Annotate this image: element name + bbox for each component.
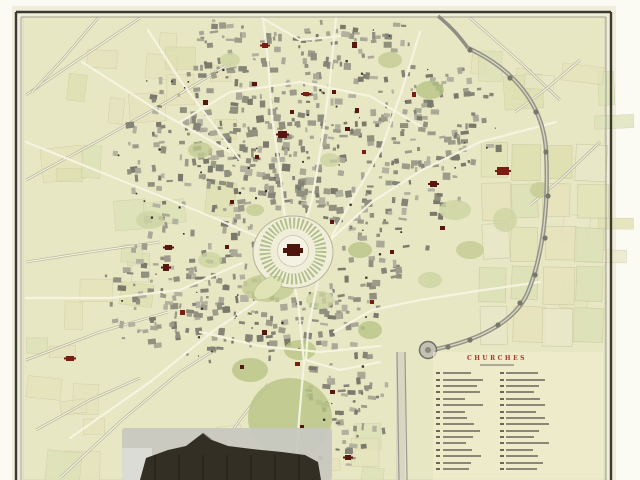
legend-row-name [506,462,543,464]
legend-row-number [436,372,440,374]
legend-columns [436,370,558,480]
church-marker [180,310,185,315]
legend-row-number [500,449,504,451]
legend-row-name [506,468,537,470]
legend-row-number [436,462,440,464]
church-marker [412,92,416,97]
legend-row-number [500,430,504,432]
vignette-engraving [122,428,332,480]
legend-row-number [436,468,440,470]
legend-row-name [506,417,545,419]
legend-row-number [436,430,440,432]
legend-title: CHURCHES [436,355,558,362]
church-marker [262,330,267,335]
legend-row-name [443,404,483,406]
legend-row [436,466,495,472]
legend-row-number [436,379,440,381]
scanned-antique-map-thumbnail: CHURCHES [0,0,640,480]
legend-row-number [500,385,504,387]
church-marker [203,100,208,105]
legend-row-number [436,455,440,457]
church-marker [440,226,445,230]
legend-row-name [506,436,534,438]
church-marker [355,108,359,113]
legend-row-number [500,404,504,406]
legend-row-name [506,385,539,387]
legend-row-number [436,391,440,393]
legend-row-name [506,455,538,457]
legend-row-number [436,404,440,406]
legend-row-number [500,423,504,425]
legend-subtitle-rule [480,364,514,366]
church-marker [230,200,234,204]
legend-row-name [506,398,540,400]
legend-row-name [506,372,538,374]
legend-row-number [500,462,504,464]
legend-row-number [500,411,504,413]
church-marker [330,390,335,394]
legend-row-number [436,423,440,425]
church-marker [390,250,394,254]
church-marker [240,365,244,369]
church-marker [352,42,357,48]
legend-row-name [506,391,534,393]
legend-row-number [436,449,440,451]
legend-row-number [500,391,504,393]
legend-row-name [443,423,474,425]
legend-row-number [436,398,440,400]
church-marker [295,362,300,366]
legend-row-number [500,398,504,400]
legend-row-name [443,468,469,470]
legend-row-number [436,442,440,444]
legend-row-name [506,404,545,406]
legend-row-name [443,398,465,400]
legend-row-number [500,436,504,438]
legend-row-name [443,462,471,464]
legend-row-number [500,372,504,374]
legend-row-number [500,379,504,381]
legend-row-name [443,455,481,457]
legend-row-name [443,442,466,444]
legend-row-number [500,455,504,457]
legend-row-name [443,372,471,374]
legend-row-name [443,417,467,419]
church-marker [225,245,229,249]
legend-row-number [500,442,504,444]
legend-row-name [506,449,533,451]
legend-row-name [443,385,477,387]
legend-row-number [436,436,440,438]
church-marker [345,127,350,131]
legend-row-name [443,411,465,413]
legend-row-name [506,411,536,413]
church-marker [252,82,257,86]
legend-row-name [443,436,473,438]
church-marker [362,150,366,154]
legend-row-name [443,449,472,451]
legend-row [500,466,559,472]
church-marker [370,300,374,304]
legend-column-2 [500,370,559,480]
legend-row-name [506,442,549,444]
legend-panel: CHURCHES [436,355,558,480]
legend-row-number [500,417,504,419]
church-marker [290,110,294,114]
legend-row-number [436,385,440,387]
legend-row-number [436,417,440,419]
church-marker [332,90,336,94]
legend-row-name [443,379,483,381]
legend-row-name [506,423,549,425]
legend-row-number [500,468,504,470]
legend-row-name [506,379,545,381]
legend-row-name [506,430,539,432]
church-marker [255,155,259,159]
legend-row-name [443,430,480,432]
legend-row-number [436,411,440,413]
legend-column-1 [436,370,495,480]
legend-row-name [443,391,480,393]
church-marker [330,220,334,224]
